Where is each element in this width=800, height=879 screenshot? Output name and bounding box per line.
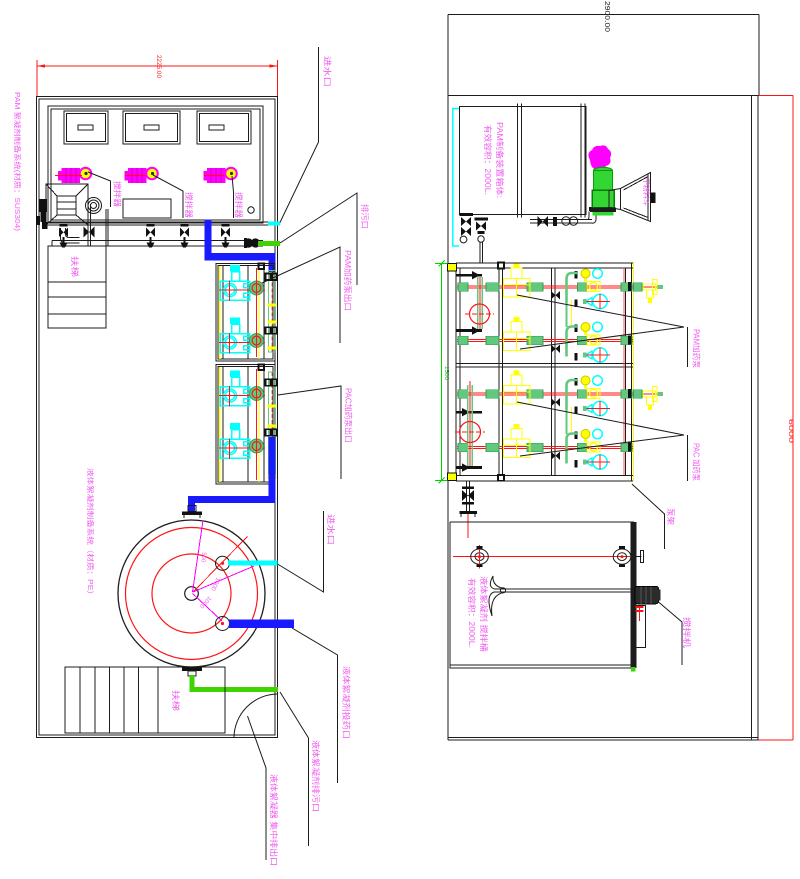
svg-text:进水口: 进水口 (323, 56, 333, 87)
svg-text:PAM加药泵出口: PAM加药泵出口 (343, 250, 353, 311)
svg-text:液体絮凝剂排污口: 液体絮凝剂排污口 (311, 740, 321, 812)
svg-text:有效容积：2000L.: 有效容积：2000L. (483, 125, 493, 195)
svg-text:PAC 加药泵: PAC 加药泵 (692, 443, 702, 481)
svg-text:6000: 6000 (787, 419, 794, 444)
svg-text:搅拌器: 搅拌器 (184, 192, 194, 218)
svg-text:有效容积：2000L.: 有效容积：2000L. (467, 578, 477, 648)
svg-text:PAM 絮凝剂制备系统(材质：SUS304): PAM 絮凝剂制备系统(材质：SUS304) (13, 92, 22, 231)
svg-text:液体絮凝剂 搅拌桶: 液体絮凝剂 搅拌桶 (479, 576, 489, 652)
svg-text:2225.00: 2225.00 (155, 55, 162, 78)
svg-text:PAM制备装置箱体:: PAM制备装置箱体: (495, 122, 505, 198)
svg-text:PAM加药泵: PAM加药泵 (692, 329, 702, 368)
svg-text:搅拌器: 搅拌器 (234, 192, 244, 218)
svg-text:扶梯: 扶梯 (171, 690, 181, 711)
svg-text:进水口: 进水口 (326, 514, 336, 545)
svg-text:液体絮凝剂制备系统（材质：PE）: 液体絮凝剂制备系统（材质：PE） (86, 468, 95, 599)
svg-text:2900.00: 2900.00 (603, 1, 612, 32)
svg-text:干粉料斗: 干粉料斗 (642, 178, 651, 206)
svg-text:排污口: 排污口 (360, 204, 370, 229)
svg-text:1500: 1500 (443, 366, 449, 380)
svg-text:搅拌器: 搅拌器 (113, 181, 123, 207)
svg-text:泵架: 泵架 (666, 508, 675, 525)
svg-text:扶梯: 扶梯 (70, 256, 80, 277)
svg-text:液体絮凝器 集中排出口: 液体絮凝器 集中排出口 (269, 774, 279, 866)
svg-text:搅拌机: 搅拌机 (682, 617, 692, 648)
svg-text:液体絮凝剂投药口: 液体絮凝剂投药口 (342, 666, 352, 739)
svg-text:PAC加药泵出口: PAC加药泵出口 (344, 388, 354, 443)
